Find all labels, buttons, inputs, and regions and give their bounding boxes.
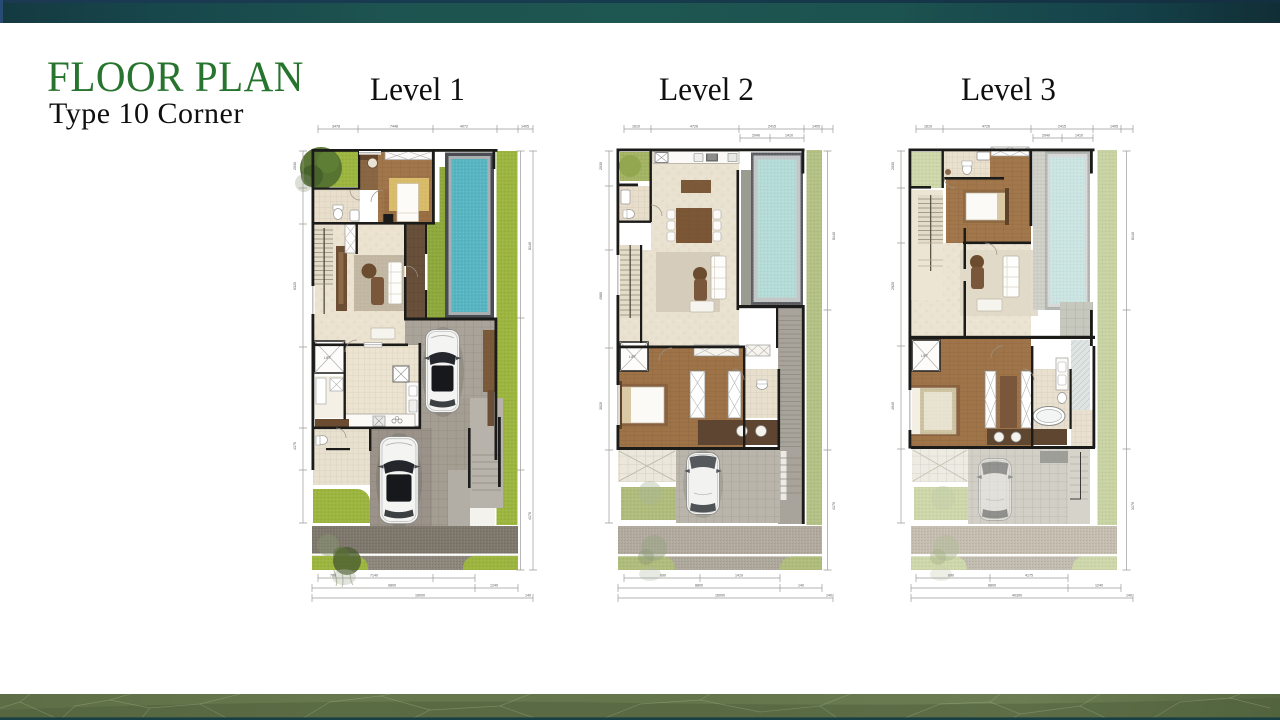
svg-text:2040: 2040 (752, 134, 760, 138)
svg-text:2030: 2030 (293, 162, 297, 170)
svg-text:8800: 8800 (988, 584, 996, 588)
svg-text:1405: 1405 (812, 125, 820, 129)
svg-text:7448: 7448 (390, 125, 398, 129)
svg-text:2415: 2415 (1058, 125, 1066, 129)
svg-text:140: 140 (525, 594, 531, 598)
svg-text:LIFT: LIFT (921, 354, 928, 358)
svg-text:4726: 4726 (982, 125, 990, 129)
svg-text:1410: 1410 (785, 134, 793, 138)
svg-text:140: 140 (798, 584, 804, 588)
svg-text:4170: 4170 (293, 442, 297, 450)
svg-text:6320: 6320 (293, 282, 297, 290)
svg-text:2040: 2040 (1042, 134, 1050, 138)
svg-text:700: 700 (330, 574, 336, 578)
svg-text:1610: 1610 (924, 125, 932, 129)
svg-text:1610: 1610 (632, 125, 640, 129)
svg-text:8140: 8140 (832, 232, 836, 240)
svg-text:2920: 2920 (891, 282, 895, 290)
svg-text:8800: 8800 (695, 584, 703, 588)
svg-text:4170: 4170 (832, 502, 836, 510)
svg-text:40300: 40300 (1012, 594, 1022, 598)
svg-text:4175: 4175 (1025, 574, 1033, 578)
svg-text:140: 140 (826, 594, 832, 598)
svg-text:4980: 4980 (599, 292, 603, 300)
svg-text:4170: 4170 (528, 512, 532, 520)
svg-text:1405: 1405 (521, 125, 529, 129)
svg-text:4726: 4726 (690, 125, 698, 129)
svg-text:1240: 1240 (490, 584, 498, 588)
svg-text:3478: 3478 (332, 125, 340, 129)
svg-text:8140: 8140 (528, 242, 532, 250)
svg-text:LIFT: LIFT (629, 355, 636, 359)
svg-text:2030: 2030 (891, 162, 895, 170)
svg-text:1240: 1240 (1095, 584, 1103, 588)
svg-text:2030: 2030 (599, 162, 603, 170)
svg-text:1410: 1410 (1075, 134, 1083, 138)
svg-text:4072: 4072 (460, 125, 468, 129)
svg-text:2415: 2415 (768, 125, 776, 129)
svg-text:16000: 16000 (715, 594, 725, 598)
svg-text:16000: 16000 (415, 594, 425, 598)
svg-text:4040: 4040 (891, 402, 895, 410)
svg-text:LIFT: LIFT (324, 356, 331, 360)
svg-text:3170: 3170 (1131, 502, 1135, 510)
svg-text:140: 140 (1126, 594, 1132, 598)
svg-text:9800: 9800 (388, 584, 396, 588)
svg-text:3020: 3020 (599, 402, 603, 410)
svg-text:7140: 7140 (370, 574, 378, 578)
svg-text:690: 690 (948, 574, 954, 578)
svg-text:1405: 1405 (1110, 125, 1118, 129)
svg-text:8140: 8140 (1131, 232, 1135, 240)
svg-text:1410: 1410 (735, 574, 743, 578)
svg-text:690: 690 (660, 574, 666, 578)
